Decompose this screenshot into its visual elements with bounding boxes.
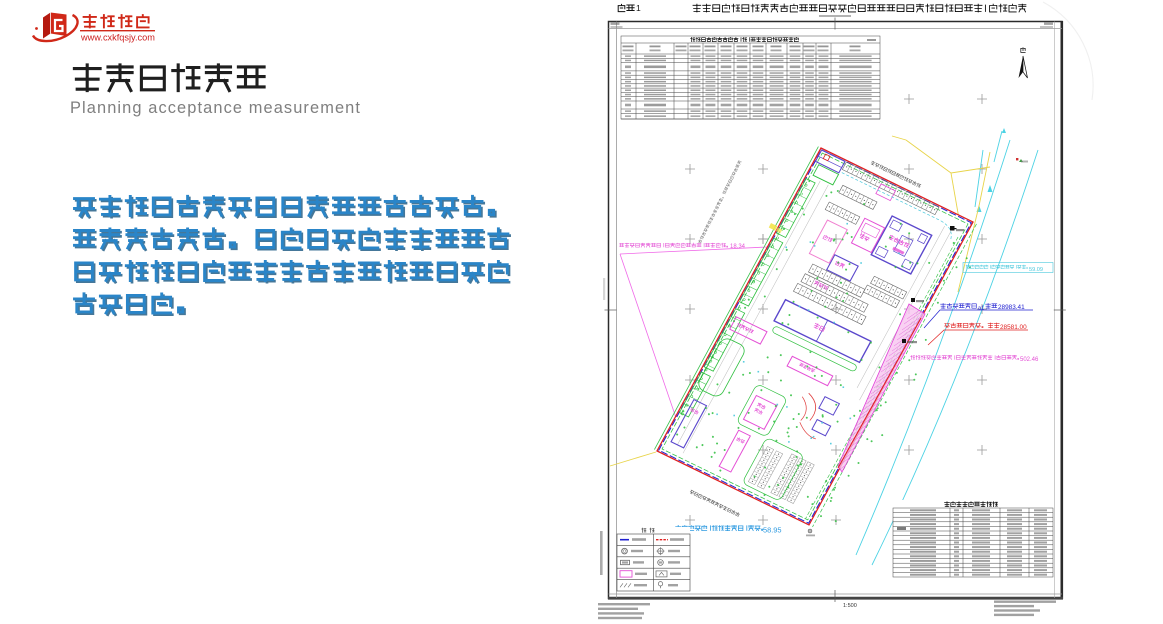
svg-text:18.34: 18.34 [730, 244, 746, 250]
svg-text:www.cxkfqsjy.com: www.cxkfqsjy.com [80, 33, 155, 43]
svg-text:28983.41: 28983.41 [998, 304, 1025, 311]
svg-text:a1: a1 [978, 306, 984, 312]
svg-text:59.09: 59.09 [1029, 267, 1043, 273]
svg-text:1:500: 1:500 [843, 603, 857, 609]
svg-text:502.46: 502.46 [1020, 357, 1039, 363]
svg-text:1: 1 [636, 3, 641, 13]
svg-text:58.95: 58.95 [763, 525, 782, 534]
svg-text:Planning acceptance measuremen: Planning acceptance measurement [70, 99, 361, 117]
svg-text:28581.00: 28581.00 [1000, 324, 1027, 331]
